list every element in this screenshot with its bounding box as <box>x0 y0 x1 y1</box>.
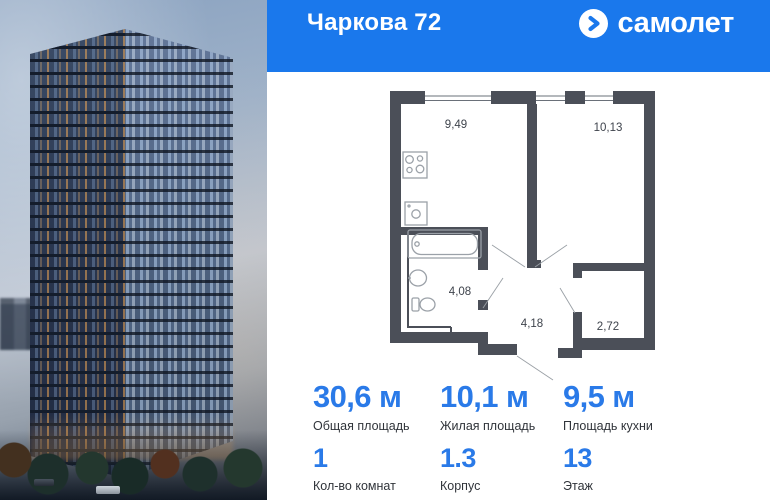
stat-label: Площадь кухни <box>563 419 653 433</box>
plan-label-hallway: 4,18 <box>521 318 543 330</box>
plan-label-living-room: 10,13 <box>594 122 623 134</box>
stat-label: Корпус <box>440 479 480 493</box>
stat-kitchen-area: 9,5 м Площадь кухни <box>563 381 653 433</box>
kitchen-sink-icon <box>405 202 427 225</box>
header-bar: Чаркова 72 самолет <box>267 0 770 72</box>
stat-rooms-count: 1 Кол-во комнат <box>313 445 396 493</box>
plan-label-bathroom: 4,08 <box>449 286 471 298</box>
car <box>34 479 54 486</box>
stat-label: Общая площадь <box>313 419 410 433</box>
stat-label: Кол-во комнат <box>313 479 396 493</box>
stat-label: Жилая площадь <box>440 419 535 433</box>
car <box>96 486 120 494</box>
stat-value: 30,6 м <box>313 381 410 412</box>
stat-label: Этаж <box>563 479 593 493</box>
building-photo <box>0 0 267 500</box>
washbasin-icon <box>408 270 427 286</box>
stat-value: 1 <box>313 445 396 472</box>
stat-total-area: 30,6 м Общая площадь <box>313 381 410 433</box>
apartment-listing-card[interactable]: Чаркова 72 самолет <box>0 0 770 500</box>
plan-label-wardrobe: 2,72 <box>597 321 619 333</box>
stat-value: 10,1 м <box>440 381 535 412</box>
floor-plan: 9,49 10,13 4,08 4,18 2,72 <box>388 88 658 388</box>
toilet-icon <box>412 298 435 311</box>
trees-silhouette <box>0 416 267 500</box>
stove-icon <box>403 152 427 178</box>
brand-logo[interactable]: самолет <box>579 7 734 40</box>
stat-value: 9,5 м <box>563 381 653 412</box>
stat-floor: 13 Этаж <box>563 445 593 493</box>
brand-logo-text: самолет <box>617 7 734 40</box>
stat-living-area: 10,1 м Жилая площадь <box>440 381 535 433</box>
stat-value: 13 <box>563 445 593 472</box>
project-title: Чаркова 72 <box>307 9 441 37</box>
residential-tower <box>28 26 236 478</box>
stat-value: 1.3 <box>440 445 480 472</box>
plan-label-kitchen: 9,49 <box>445 119 467 131</box>
stat-building: 1.3 Корпус <box>440 445 480 493</box>
brand-arrow-icon <box>579 9 608 38</box>
